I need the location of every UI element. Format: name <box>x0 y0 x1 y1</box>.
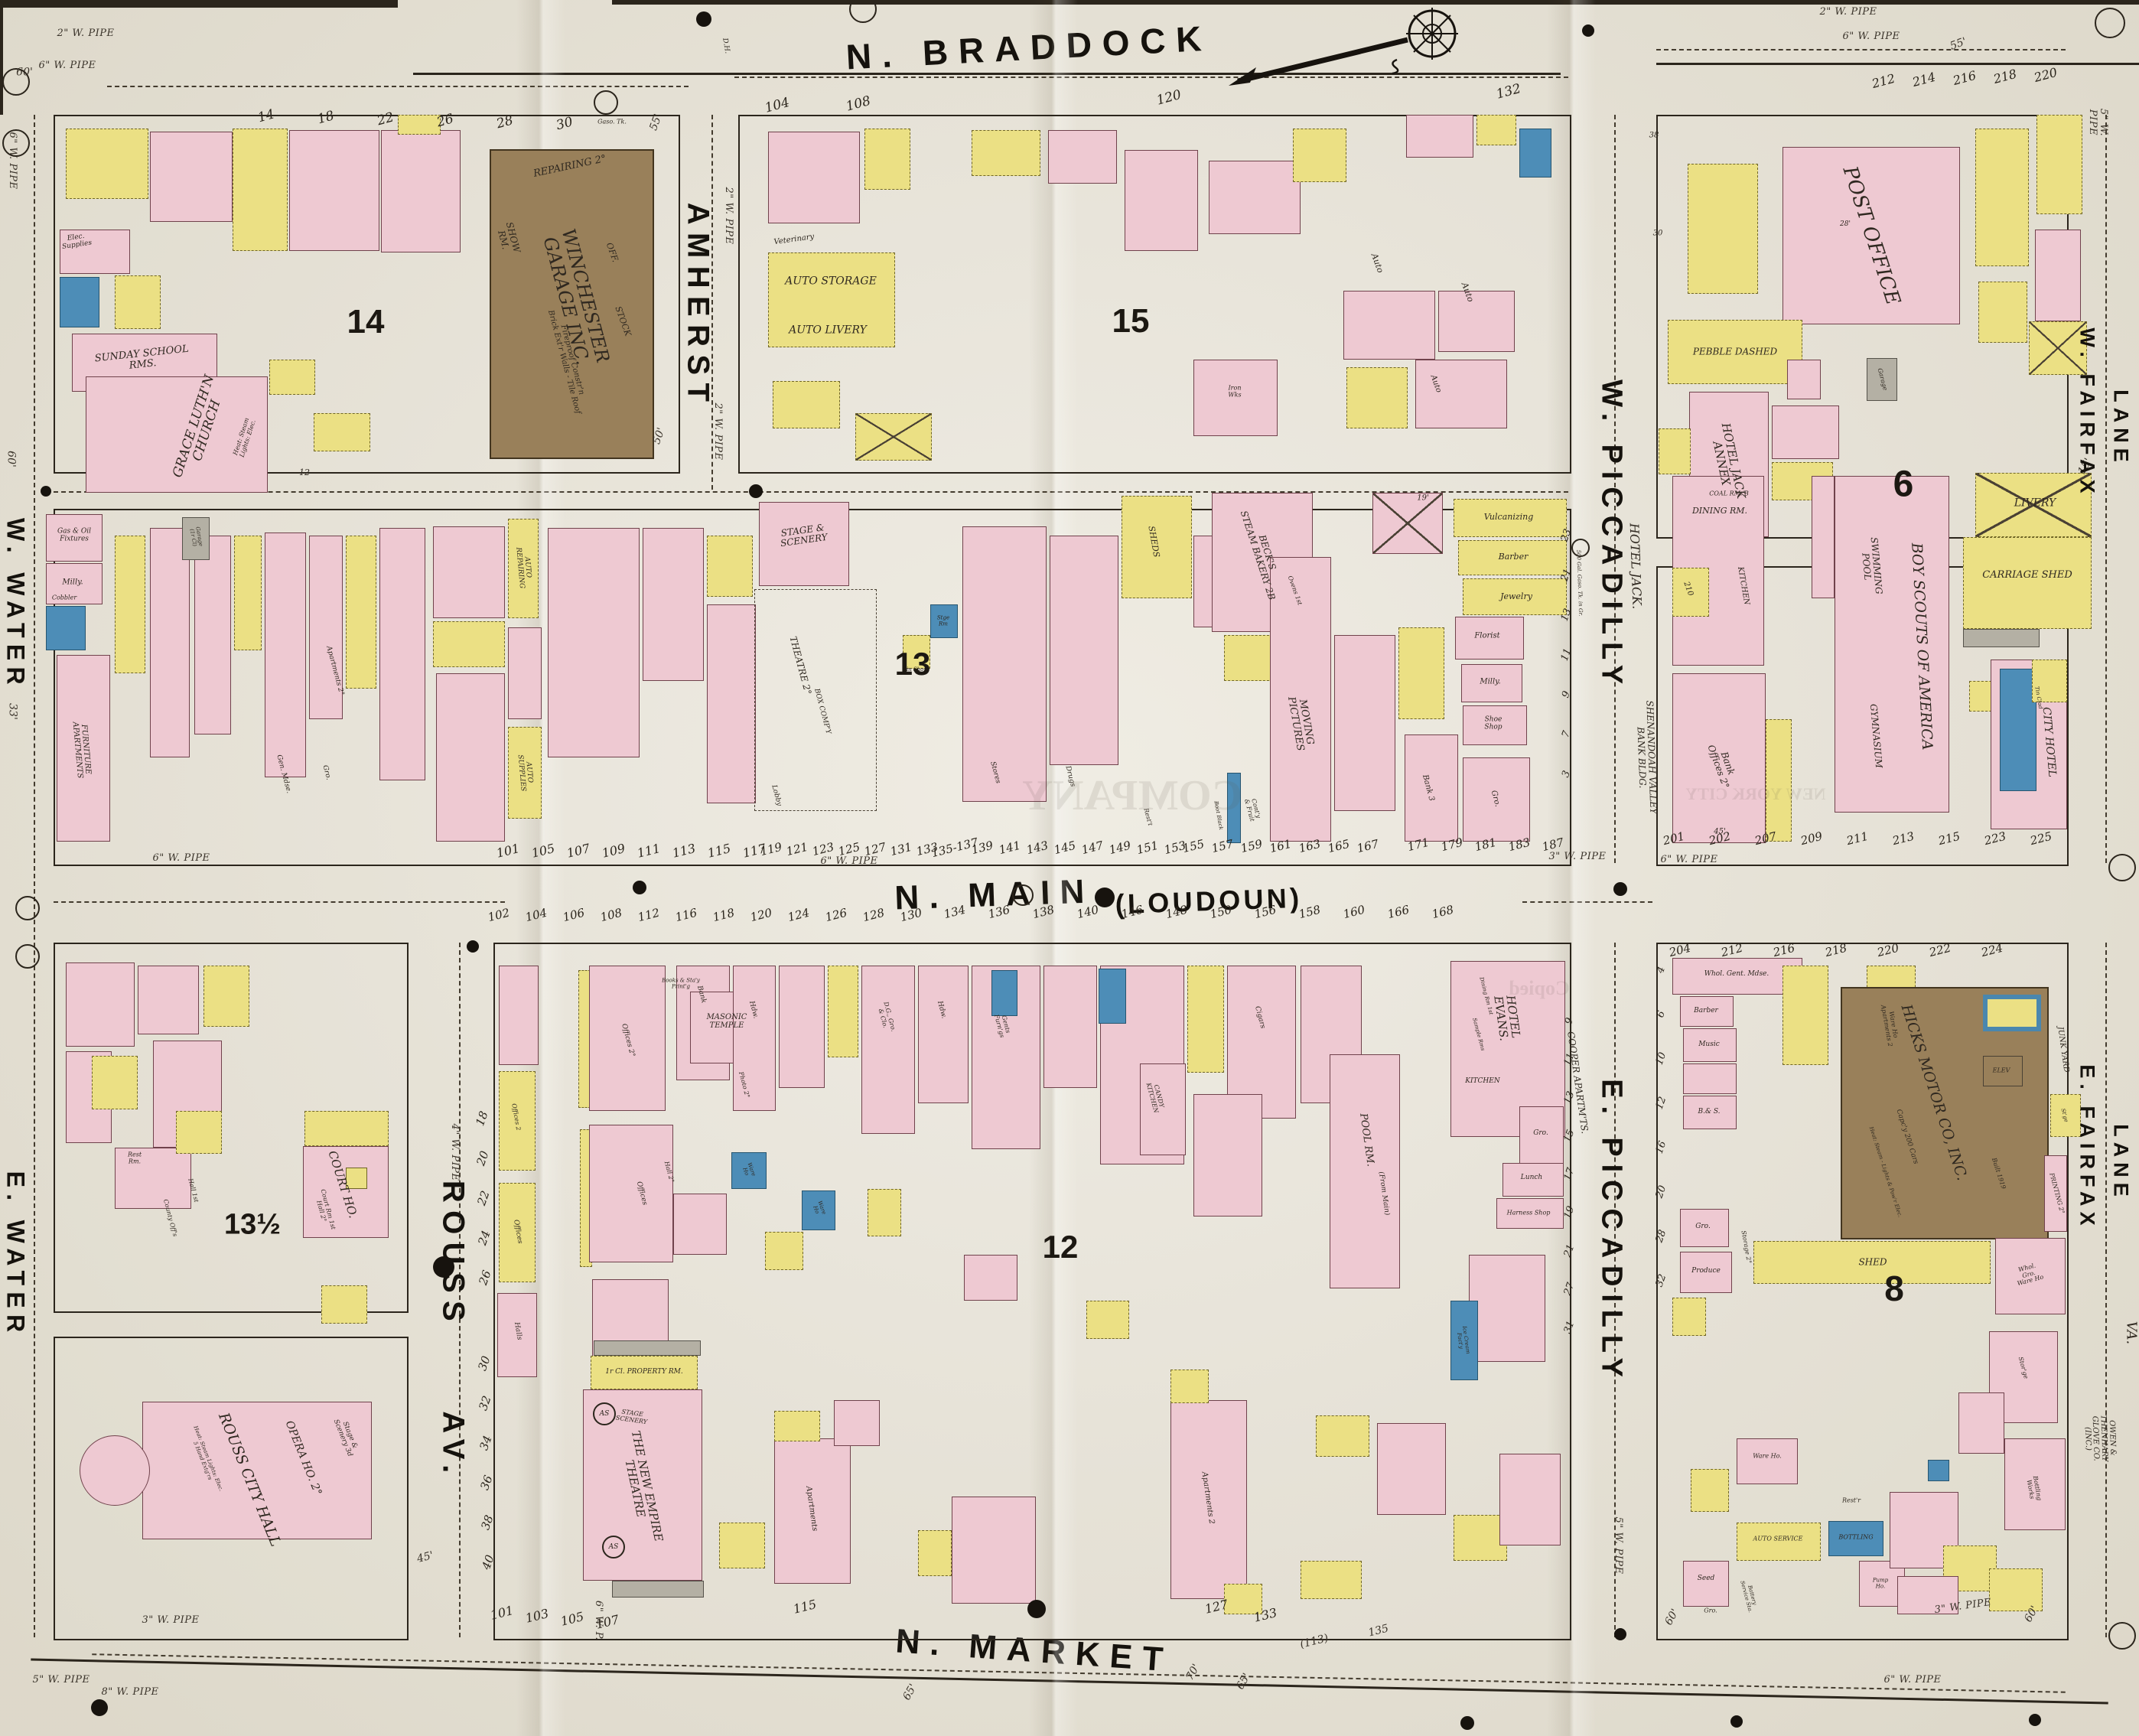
building-label: 38 <box>1649 132 1659 141</box>
building <box>194 536 231 734</box>
building <box>203 966 249 1027</box>
hydrant-dot <box>91 1699 108 1716</box>
house-number: 34 <box>477 1434 494 1451</box>
distance-label: 33' <box>6 703 18 720</box>
building <box>1737 1438 1798 1484</box>
building <box>66 962 135 1047</box>
pipe-label: 6" W. PIPE <box>152 853 210 864</box>
building <box>1293 129 1346 182</box>
building <box>962 526 1047 802</box>
building <box>1187 966 1224 1073</box>
building <box>918 1530 952 1576</box>
house-number: 120 <box>749 907 773 924</box>
building <box>1659 428 1691 474</box>
building-label: CARRIAGE SHED <box>1982 570 2072 581</box>
house-number: 20 <box>474 1149 491 1167</box>
house-number: 116 <box>674 907 698 924</box>
house-number: 30 <box>476 1354 493 1372</box>
building <box>612 1581 704 1598</box>
house-number: 36 <box>478 1474 495 1491</box>
pipe-label: 4" W. PIPE <box>449 1123 460 1181</box>
building-label: VA. <box>2124 1321 2138 1345</box>
building <box>1975 129 2029 266</box>
distance-label: 65' <box>1235 1672 1253 1692</box>
house-number: 26 <box>477 1269 493 1286</box>
building <box>774 1411 820 1441</box>
hydrant-dot <box>1095 888 1115 907</box>
street-name-n-braddock: N. BRADDOCK <box>845 18 1213 78</box>
block-number: 6 <box>1893 464 1914 506</box>
house-number: 168 <box>1431 904 1455 921</box>
building-label: Barber <box>1499 552 1529 562</box>
building <box>508 627 542 719</box>
building <box>1193 1094 1262 1217</box>
building <box>234 536 262 650</box>
building <box>1978 282 2027 343</box>
building-label: ELEV <box>1993 1068 2010 1075</box>
building-label: OWEN & THENHARY GLOVE CO. (INC.) <box>2082 1415 2116 1463</box>
water-pipe-line <box>2105 115 2107 863</box>
building <box>314 413 370 451</box>
building-label: Harness Shop <box>1507 1210 1551 1217</box>
building-label: KITCHEN <box>1465 1078 1499 1086</box>
building-label: Books & Sta'y Print'g <box>662 978 700 989</box>
building <box>1787 360 1821 399</box>
pipe-label: 5" W. PIPE <box>2087 102 2108 143</box>
building <box>1170 1370 1209 1403</box>
house-number: 216 <box>1952 69 1978 88</box>
building <box>115 1148 191 1209</box>
house-number: 102 <box>487 907 511 924</box>
building <box>673 1194 727 1255</box>
hydrant-dot <box>1027 1600 1046 1618</box>
building-label: 19' <box>1417 495 1428 503</box>
building <box>289 130 379 251</box>
block-number: 12 <box>1043 1229 1079 1265</box>
building <box>115 536 145 673</box>
building <box>1963 629 2040 647</box>
building <box>834 1400 880 1446</box>
building <box>436 673 505 842</box>
building-label: HOTEL EVANS. <box>1492 993 1522 1041</box>
sprinkler-ring: AS <box>602 1536 625 1558</box>
building <box>150 132 233 222</box>
house-number: 120 <box>1155 88 1183 108</box>
pipe-label: 2" W. PIPE <box>723 187 734 244</box>
building <box>1499 1454 1561 1545</box>
building <box>1958 1392 2004 1454</box>
building <box>1476 115 1516 145</box>
building <box>1812 476 1835 598</box>
hydrant-dot <box>1460 1716 1474 1730</box>
building <box>1983 995 2041 1031</box>
building <box>707 604 756 803</box>
pipe-label: 2" W. PIPE <box>712 402 723 460</box>
building <box>150 528 190 757</box>
hydrant-dot <box>433 1256 454 1278</box>
street-name: W. PICCADILLY <box>1595 379 1628 692</box>
building <box>265 533 306 777</box>
utility-ring <box>15 896 40 920</box>
building <box>1772 406 1839 459</box>
building-label: HOTEL JACK. <box>1627 523 1643 610</box>
pipe-label: 6" W. PIPE <box>1883 1675 1941 1686</box>
hydrant-dot <box>1614 1628 1626 1640</box>
house-number: 160 <box>1342 904 1366 921</box>
building <box>433 526 505 618</box>
hydrant-dot <box>1730 1715 1743 1728</box>
building <box>2035 230 2081 321</box>
house-number: 132 <box>1495 82 1522 102</box>
house-number: 124 <box>786 907 811 924</box>
pipe-label: 6" W. PIPE <box>1660 855 1717 865</box>
building <box>60 277 99 327</box>
building <box>1398 627 1444 719</box>
house-number: 106 <box>562 907 586 924</box>
building <box>548 528 640 757</box>
building <box>1469 1255 1545 1362</box>
building-label: 12 <box>299 468 310 477</box>
building <box>1928 1460 1949 1481</box>
building <box>1334 635 1395 811</box>
building <box>115 275 161 329</box>
pipe-label: 6" W. PIPE <box>38 60 96 71</box>
house-number: 214 <box>1911 70 1937 90</box>
distance-label: 65' <box>901 1682 920 1702</box>
block-number: 15 <box>1112 302 1150 340</box>
utility-ring <box>2095 8 2125 38</box>
street-name: E. WATER <box>2 1171 30 1339</box>
water-pipe-line <box>54 491 1568 493</box>
street-name: E. FAIRFAX <box>2076 1064 2099 1230</box>
building <box>1125 150 1198 251</box>
building <box>1782 966 1828 1065</box>
pipe-label: 5" W. PIPE <box>1613 1516 1623 1574</box>
house-number: 18 <box>474 1109 490 1127</box>
sprinkler-ring: AS <box>593 1402 616 1425</box>
building <box>1330 1054 1400 1288</box>
building-label: Gro. <box>1695 1223 1711 1231</box>
building <box>773 381 840 428</box>
utility-ring <box>1012 884 1034 906</box>
building <box>1099 969 1126 1024</box>
building <box>1688 164 1758 294</box>
building-label: MASONIC TEMPLE <box>707 1014 747 1031</box>
building <box>594 1340 701 1356</box>
building <box>964 1255 1017 1301</box>
bleedthrough-text: Copied <box>1509 977 1569 1000</box>
building <box>1683 1561 1729 1607</box>
house-number: 104 <box>763 96 791 116</box>
utility-ring <box>15 944 40 969</box>
building <box>972 130 1040 176</box>
building <box>2000 669 2036 791</box>
building-label: 500 Gal. Gaso. Tk. in Gr. <box>1575 550 1584 617</box>
pipe-label: 5" W. PIPE <box>32 1675 90 1686</box>
map-canvas: N. BRADDOCK N. MAIN (LOUDOUN) N. MARKET … <box>0 0 2139 1736</box>
building <box>779 966 825 1088</box>
building <box>1438 291 1515 352</box>
house-number: 104 <box>524 907 549 924</box>
house-number: 112 <box>636 907 661 924</box>
building-label: LIVERY <box>2014 497 2056 509</box>
house-number: 108 <box>845 94 872 114</box>
building <box>433 621 505 667</box>
building <box>1989 1568 2043 1611</box>
pipe-label: 6" W. PIPE <box>1842 31 1900 42</box>
building <box>918 966 969 1103</box>
building-label: Rest'r <box>1842 1498 1861 1505</box>
building-label: Milly. <box>1480 679 1500 687</box>
utility-ring <box>2108 854 2136 881</box>
house-number: 24 <box>476 1229 493 1246</box>
building <box>138 966 199 1034</box>
building-label: AUTO LIVERY <box>789 324 867 336</box>
hydrant-dot <box>1613 882 1627 896</box>
building <box>381 130 461 252</box>
building <box>269 360 315 395</box>
sheet-top-bar <box>0 0 398 8</box>
building-label: Garage (1r Cl) <box>188 526 203 548</box>
building <box>855 413 932 461</box>
building <box>1048 130 1117 184</box>
utility-ring <box>2 129 30 157</box>
street-edge-line <box>1656 63 2139 65</box>
building <box>768 132 860 223</box>
building <box>864 129 910 190</box>
building <box>1343 291 1435 360</box>
building <box>1301 1561 1362 1599</box>
house-number: 128 <box>861 907 886 924</box>
building <box>1050 536 1118 765</box>
utility-ring <box>594 90 618 115</box>
house-number: 22 <box>475 1189 492 1207</box>
house-number: 126 <box>824 907 848 924</box>
house-number: 218 <box>1992 67 2018 86</box>
pipe-label: 8" W. PIPE <box>101 1687 158 1698</box>
building-label: Pump Ho. <box>1873 1578 1888 1589</box>
utility-ring <box>2108 1622 2136 1650</box>
street-name: W. FAIRFAX <box>2076 327 2099 498</box>
building-label: Gro. <box>1533 1130 1548 1138</box>
building-label: Barber <box>1694 1008 1718 1015</box>
compass-north-icon <box>1216 3 1476 95</box>
hydrant-dot <box>749 484 763 498</box>
building-label: D.H. <box>720 37 730 54</box>
building <box>1043 966 1097 1088</box>
building-label: Whol. Gent. Mdse. <box>1704 971 1769 979</box>
building <box>643 528 704 681</box>
building <box>868 1189 901 1236</box>
building-label: Produce <box>1691 1268 1721 1275</box>
building <box>1672 1298 1706 1336</box>
building <box>346 536 376 689</box>
building-label: B.& S. <box>1698 1109 1720 1116</box>
hydrant-dot <box>1582 24 1594 37</box>
building <box>1316 1415 1369 1457</box>
building <box>1683 1063 1737 1094</box>
house-number: 32 <box>477 1394 493 1412</box>
street-name: E. PICCADILLY <box>1595 1079 1628 1384</box>
building-label: AUTO SERVICE <box>1753 1536 1803 1543</box>
building-label: Gas & Oil Fixtures <box>57 528 91 542</box>
building-label: 28' <box>1840 221 1851 229</box>
pipe-label: 2" W. PIPE <box>1819 7 1877 18</box>
building-label: Music <box>1698 1041 1720 1049</box>
water-pipe-line <box>1656 49 2066 50</box>
building-label: AUTO STORAGE <box>785 275 877 287</box>
building <box>719 1523 765 1568</box>
distance-label: 70' <box>1184 1663 1203 1682</box>
pipe-label: 3" W. PIPE <box>142 1615 199 1626</box>
building <box>80 1435 150 1506</box>
street-name: W. WATER <box>2 518 30 691</box>
building-label: Stge Rm <box>937 615 949 627</box>
utility-ring <box>849 0 877 23</box>
building-label: 1r Cl. PROPERTY RM. <box>605 1369 683 1376</box>
bleedthrough-text: COMPANY <box>1022 771 1242 820</box>
water-pipe-line <box>107 86 689 87</box>
building-label: Florist <box>1474 633 1499 641</box>
hydrant-dot <box>696 11 711 27</box>
water-pipe-line <box>1522 901 1652 903</box>
building-label: SHENANDOAH VALLEY BANK BLDG. <box>1634 700 1658 814</box>
building <box>1766 719 1792 842</box>
building-label: Shoe Shop <box>1484 716 1502 731</box>
building <box>1086 1301 1129 1339</box>
building <box>321 1285 367 1324</box>
block-number: 13½ <box>224 1209 281 1242</box>
building-label: Milly. <box>62 579 83 588</box>
building <box>379 528 425 780</box>
building-label: Vulcanizing <box>1484 513 1534 522</box>
building <box>66 129 148 199</box>
building <box>861 966 915 1134</box>
building <box>1372 493 1443 554</box>
distance-label: 60' <box>5 451 16 467</box>
street-name: AV. <box>436 1411 470 1480</box>
hydrant-dot <box>41 486 51 497</box>
building <box>1519 129 1551 178</box>
building-label: BOTTLING <box>1838 1535 1873 1542</box>
house-number: 118 <box>711 907 736 924</box>
building-label: Gro. <box>1704 1608 1717 1615</box>
building <box>1406 115 1473 158</box>
house-number: 212 <box>1870 72 1896 91</box>
block-number: 8 <box>1884 1268 1904 1309</box>
building <box>1377 1423 1446 1515</box>
house-number: 108 <box>599 907 623 924</box>
building <box>1835 476 1949 813</box>
building <box>46 606 86 650</box>
street-name: ROUSS <box>436 1181 470 1329</box>
hydrant-dot <box>467 940 479 953</box>
building <box>952 1497 1036 1604</box>
pipe-label: 3" W. PIPE <box>1548 852 1606 862</box>
building <box>1209 161 1301 234</box>
building <box>733 966 776 1111</box>
building-label: Jewelry <box>1500 592 1532 601</box>
building <box>92 1056 138 1109</box>
block-number: 13 <box>895 646 931 682</box>
building <box>707 536 753 597</box>
building-label: PEBBLE DASHED <box>1693 347 1777 357</box>
building <box>176 1111 222 1154</box>
utility-ring <box>1571 539 1590 557</box>
building-label: 30 <box>1653 230 1663 239</box>
block-number: 14 <box>347 303 385 341</box>
building-label: Cobbler <box>52 595 77 602</box>
bleedthrough-text: NEW YORK CITY <box>1685 784 1825 804</box>
building <box>398 115 441 135</box>
building-label: Gaso. Tk. <box>597 119 627 126</box>
street-name: LANE <box>2109 389 2133 467</box>
building <box>1415 360 1507 428</box>
water-pipe-line <box>54 901 505 903</box>
street-name: AMHERST <box>681 203 715 410</box>
building <box>828 966 858 1057</box>
distance-label: 45' <box>416 1550 435 1565</box>
building <box>233 129 288 251</box>
pipe-label: 2" W. PIPE <box>57 28 114 39</box>
building-label: COAL RM. B <box>1709 491 1749 498</box>
building-label: SHED <box>1858 1258 1887 1268</box>
street-name: LANE <box>2109 1124 2133 1202</box>
building <box>304 1111 389 1146</box>
building-label: Seed <box>1698 1575 1715 1583</box>
building-label: Lunch <box>1521 1174 1542 1182</box>
hydrant-dot <box>2029 1714 2041 1726</box>
building-label: Ware Ho. <box>1753 1454 1782 1461</box>
utility-ring <box>2 68 30 96</box>
building-label: DINING RM. <box>1692 506 1747 516</box>
house-number: 166 <box>1386 904 1411 921</box>
building <box>589 1125 673 1262</box>
building-label: SWIMMING POOL <box>1859 537 1883 596</box>
building <box>765 1232 803 1270</box>
building-label: Rest Rm. <box>128 1151 142 1164</box>
building <box>1346 367 1408 428</box>
building <box>499 966 539 1065</box>
building <box>1963 537 2092 629</box>
sheet-left-bar <box>0 0 3 115</box>
water-pipe-line <box>2105 943 2107 1637</box>
building <box>2036 115 2082 214</box>
building <box>991 970 1017 1016</box>
hydrant-dot <box>633 881 646 894</box>
building-label: Iron Wks <box>1228 385 1241 398</box>
building-label: AUTO SUPPLIES <box>516 754 534 792</box>
house-number: 220 <box>2033 66 2059 85</box>
building <box>1691 1469 1729 1512</box>
water-pipe-line <box>34 115 35 1637</box>
